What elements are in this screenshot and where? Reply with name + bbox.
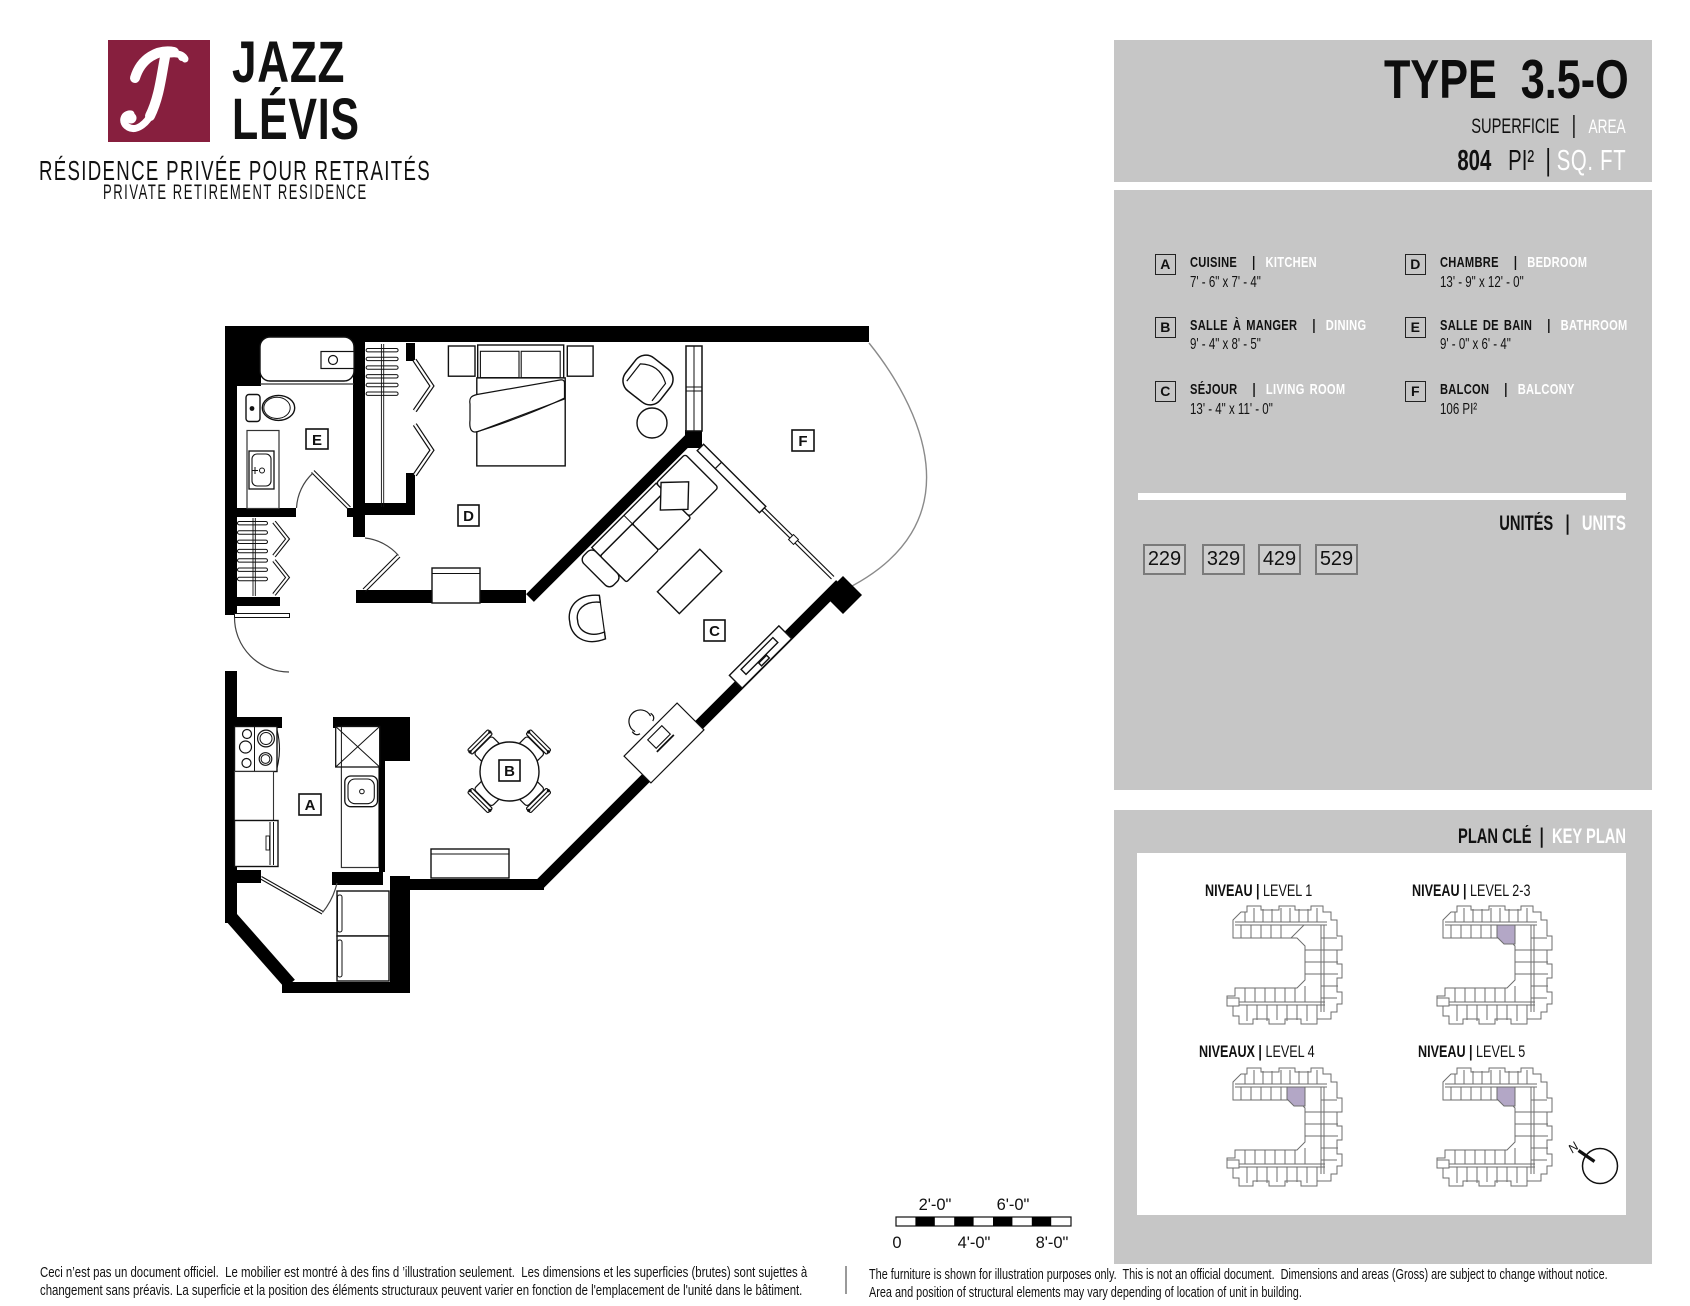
svg-text:N: N [1565,1139,1582,1156]
